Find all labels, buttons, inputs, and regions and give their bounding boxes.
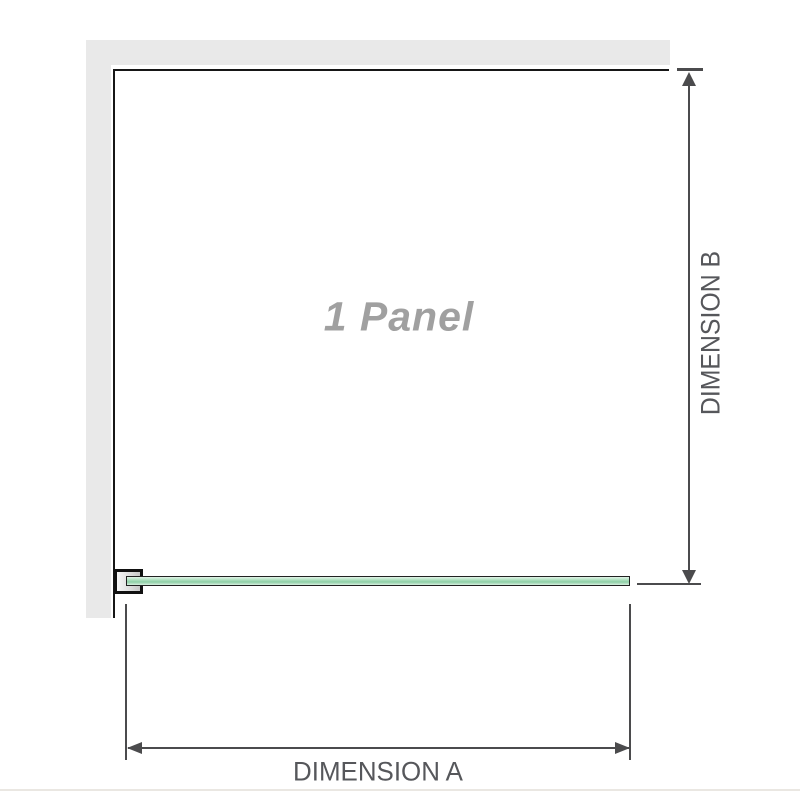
- dimension-a-label: DIMENSION A: [293, 757, 463, 788]
- dimension-b-tick-bottom: [637, 583, 701, 585]
- wall-top: [86, 40, 670, 65]
- dimension-b-line: [688, 74, 690, 582]
- dimension-b-arrow-down-icon: [682, 570, 696, 584]
- dimension-a-arrow-left-icon: [127, 742, 142, 754]
- enclosure-edge-left: [113, 69, 115, 618]
- page-baseline-divider: [0, 789, 800, 791]
- dimension-a-line: [128, 747, 630, 749]
- dimension-b-arrow-up-icon: [682, 72, 696, 86]
- dimension-a-extension-right: [629, 604, 631, 760]
- dimension-a-extension-left: [125, 604, 127, 760]
- panel-count-label: 1 Panel: [324, 294, 475, 341]
- enclosure-edge-top: [113, 69, 669, 71]
- dimension-b-tick-top: [677, 68, 703, 71]
- glass-panel: [126, 576, 630, 586]
- wall-left: [86, 40, 111, 618]
- shower-panel-diagram: DIMENSION B DIMENSION A 1 Panel: [0, 0, 800, 800]
- dimension-b-label: DIMENSION B: [696, 251, 727, 415]
- dimension-a-arrow-right-icon: [615, 742, 630, 754]
